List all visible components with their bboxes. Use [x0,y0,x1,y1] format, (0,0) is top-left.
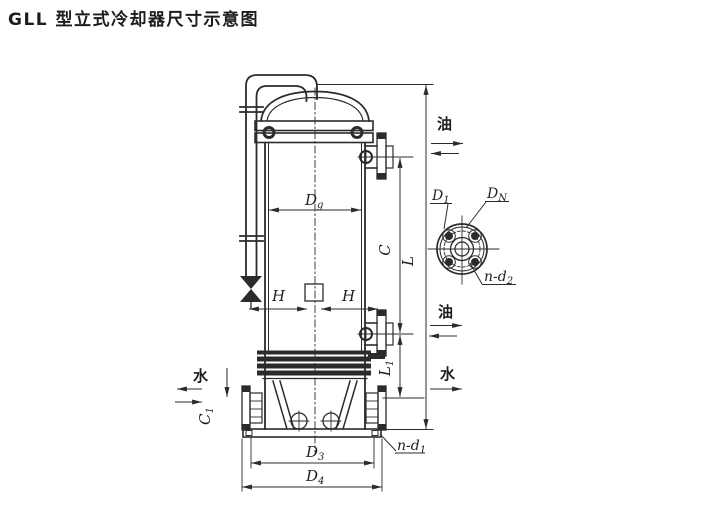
dim-label-d4: D4 [305,467,324,487]
flange-bolt-hole [471,258,479,266]
dimension-lines [227,85,433,492]
flange-bolt-hole [445,258,453,266]
flow-labels: 油 油 水 水 [193,115,456,385]
dim-label-h-left: H [271,287,286,305]
cooler-technical-drawing: Dg H H C L L1 C1 D3 D4 n-d1 D1 DN n-d2 油… [0,0,728,529]
tube-bundle-plates [257,351,371,379]
detail-label-d1: D1 [431,188,450,206]
oil-label-middle: 油 [438,303,453,321]
top-flange [255,121,373,143]
dim-label-d3: D3 [305,443,324,463]
detail-label-n-d2: n-d2 [484,269,513,287]
base-plate [243,411,381,437]
dim-label-c: C [376,244,394,256]
dim-label-l: L [399,256,417,267]
flange-bolt-hole [445,232,453,240]
dim-label-n-d1: n-d1 [397,438,426,456]
flange-bolt-hole [471,232,479,240]
water-flange-left [242,386,262,430]
base-bolt-hole [246,431,252,436]
water-label-left: 水 [193,367,209,385]
oil-nozzle-upper [358,133,413,179]
valve-icon [240,276,262,302]
dim-label-l1: L1 [376,360,396,377]
nameplate [305,284,323,301]
oil-label-top: 油 [437,115,452,133]
dim-label-dg: Dg [304,191,323,211]
dim-label-h-right: H [341,287,356,305]
drawing-page: GLL 型立式冷却器尺寸示意图 [0,0,728,529]
flow-arrows [175,144,463,403]
detail-label-dn: DN [486,186,508,204]
base-bolt-hole [372,431,378,436]
dim-label-c1: C1 [196,407,216,425]
water-label-right: 水 [440,365,456,383]
water-flange-right [366,386,386,430]
